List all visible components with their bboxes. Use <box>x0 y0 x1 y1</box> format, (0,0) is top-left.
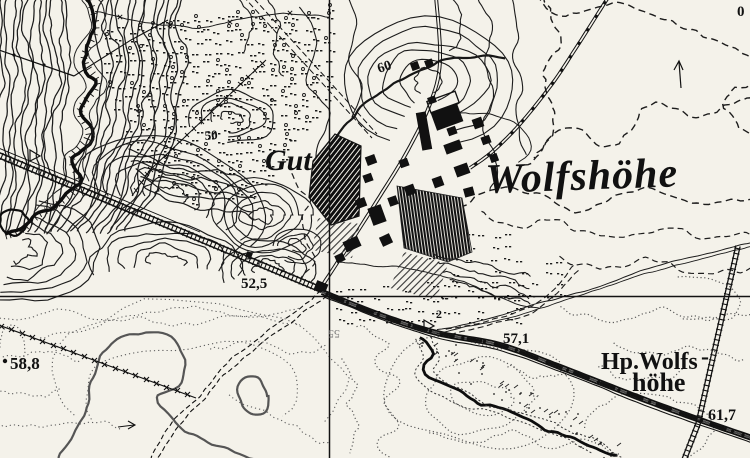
svg-text:61,7: 61,7 <box>708 407 736 424</box>
svg-text:60: 60 <box>376 58 394 77</box>
svg-text:Gut: Gut <box>265 144 313 177</box>
svg-text:höhe: höhe <box>632 368 685 397</box>
svg-text:52,5: 52,5 <box>241 276 267 292</box>
svg-text:58,8: 58,8 <box>10 354 40 373</box>
svg-text:0: 0 <box>737 4 745 20</box>
svg-text:-: - <box>701 344 709 370</box>
svg-text:57,1: 57,1 <box>503 331 529 347</box>
svg-text:2: 2 <box>436 307 442 321</box>
svg-text:55: 55 <box>328 327 340 341</box>
svg-text:50: 50 <box>204 127 218 143</box>
svg-text:Wolfshöhe: Wolfshöhe <box>485 150 679 203</box>
